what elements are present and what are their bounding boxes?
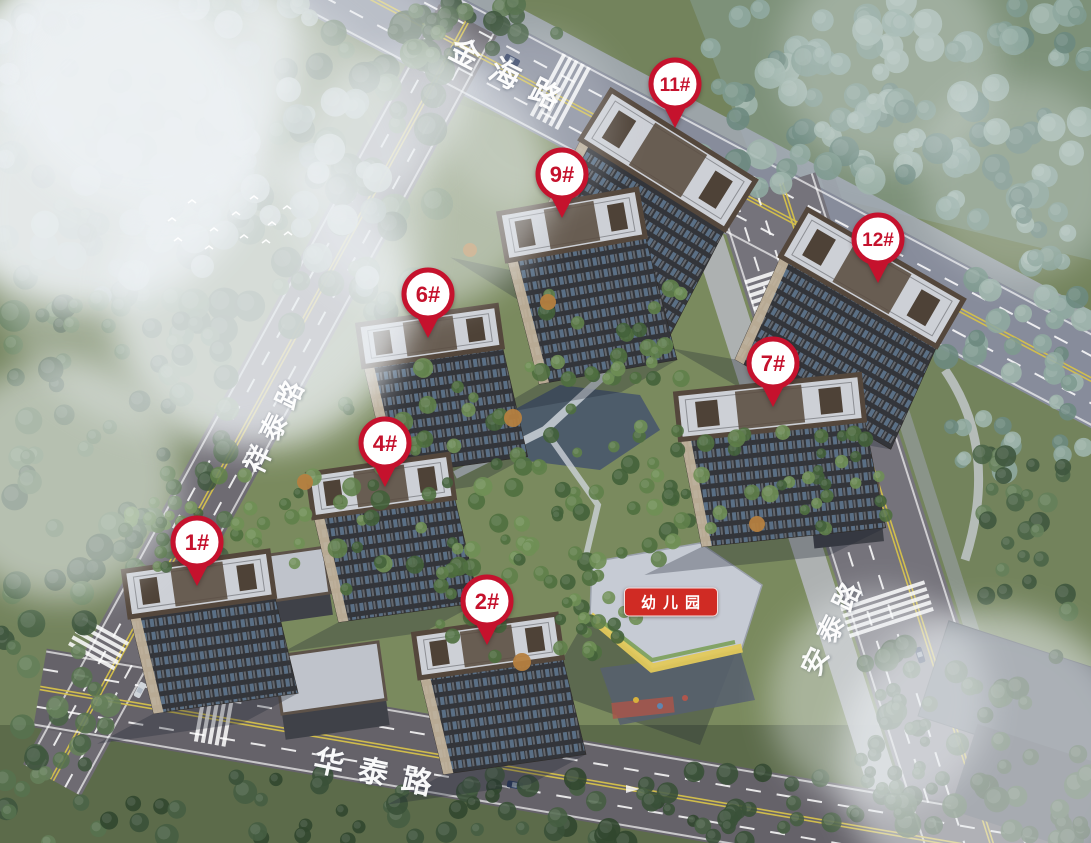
site-plan-rendering: 金海路祥泰路安泰路华泰路 1# 2# 4# 6# 7# 9# (0, 0, 1091, 843)
marker-label: 2# (475, 589, 499, 614)
aerial-scene (0, 0, 1091, 843)
building-marker-1[interactable]: 1# (167, 515, 227, 593)
building-marker-11[interactable]: 11# (645, 57, 705, 135)
marker-label: 6# (416, 282, 440, 307)
marker-pin-icon: 11# (645, 57, 705, 135)
marker-label: 9# (550, 162, 574, 187)
building-marker-9[interactable]: 9# (532, 147, 592, 225)
marker-label: 7# (761, 351, 785, 376)
building-marker-4[interactable]: 4# (355, 416, 415, 494)
building-marker-6[interactable]: 6# (398, 267, 458, 345)
marker-label: 11# (660, 75, 691, 96)
marker-label: 12# (862, 230, 894, 251)
marker-label: 1# (185, 530, 209, 555)
building-marker-2[interactable]: 2# (457, 574, 517, 652)
marker-pin-icon: 7# (743, 336, 803, 414)
marker-pin-icon: 6# (398, 267, 458, 345)
marker-pin-icon: 2# (457, 574, 517, 652)
building-marker-12[interactable]: 12# (848, 212, 908, 290)
marker-label: 4# (373, 431, 397, 456)
marker-pin-icon: 9# (532, 147, 592, 225)
marker-pin-icon: 4# (355, 416, 415, 494)
marker-pin-icon: 1# (167, 515, 227, 593)
building-marker-7[interactable]: 7# (743, 336, 803, 414)
marker-pin-icon: 12# (848, 212, 908, 290)
